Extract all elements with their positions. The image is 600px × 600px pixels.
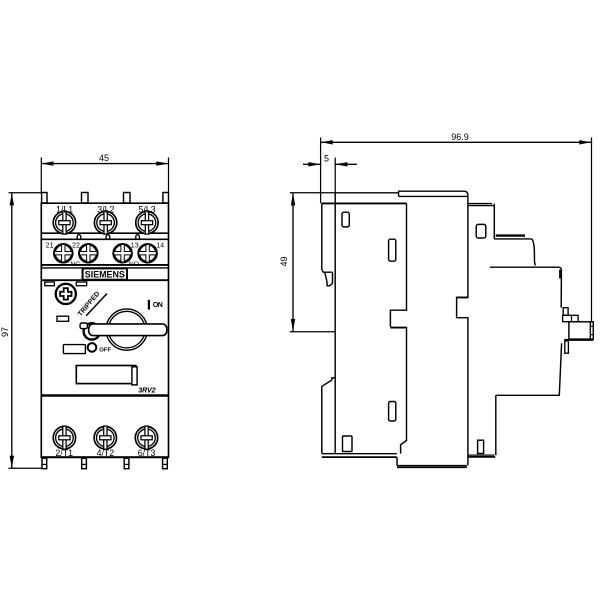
svg-text:NO: NO	[129, 261, 139, 268]
svg-text:SIEMENS: SIEMENS	[85, 270, 125, 280]
svg-text:3/L2: 3/L2	[97, 205, 114, 215]
svg-text:97: 97	[0, 327, 10, 337]
svg-text:49: 49	[279, 256, 289, 266]
svg-text:ON: ON	[153, 302, 163, 309]
svg-text:14: 14	[156, 242, 164, 249]
svg-text:13: 13	[131, 242, 139, 249]
svg-text:1/L1: 1/L1	[56, 205, 73, 215]
svg-text:NC: NC	[70, 261, 80, 268]
svg-text:21: 21	[46, 242, 54, 249]
svg-text:OFF: OFF	[99, 347, 111, 353]
svg-text:5/L3: 5/L3	[139, 205, 156, 215]
svg-text:3RV2: 3RV2	[138, 386, 155, 395]
svg-text:22: 22	[72, 242, 80, 249]
svg-text:45: 45	[99, 153, 109, 163]
svg-text:96.9: 96.9	[451, 132, 469, 142]
svg-text:5: 5	[324, 154, 329, 164]
